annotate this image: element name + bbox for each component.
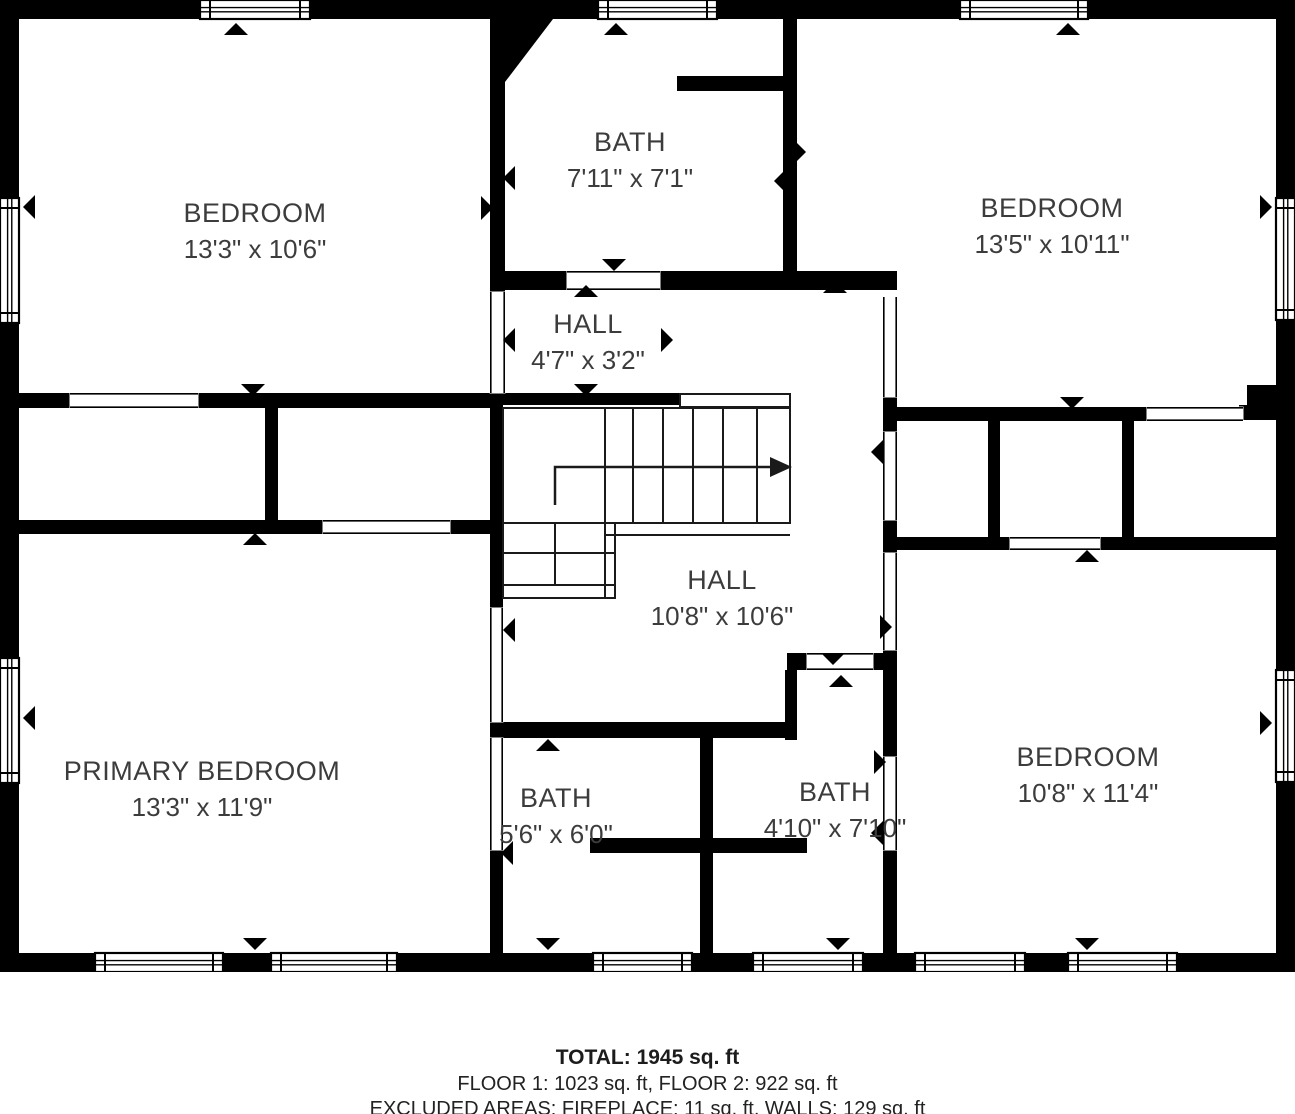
door-swing-marker-icon	[602, 259, 626, 271]
room-label: HALL	[553, 309, 623, 339]
window	[1276, 198, 1295, 320]
door-swing-marker-icon	[503, 618, 515, 642]
wall-segment	[895, 537, 1010, 550]
wall-segment	[265, 408, 278, 522]
window	[200, 0, 310, 19]
excluded-areas-text: EXCLUDED AREAS: FIREPLACE: 11 sq. ft, WA…	[0, 1098, 1295, 1114]
stair-winder-outline	[503, 523, 615, 598]
chamfered-wall	[490, 19, 553, 82]
wall-segment	[490, 850, 503, 953]
room-label: BATH	[520, 783, 592, 813]
window	[753, 953, 863, 972]
area-summary: TOTAL: 1945 sq. ft FLOOR 1: 1023 sq. ft,…	[0, 1046, 1295, 1114]
wall-segment	[1122, 407, 1134, 550]
room-dimensions: 10'8" x 10'6"	[651, 601, 794, 631]
wall-segment	[1276, 0, 1295, 972]
room-dimensions: 7'11" x 7'1"	[567, 163, 693, 193]
wall-segment	[19, 393, 70, 408]
window	[593, 953, 692, 972]
door-swing-marker-icon	[1260, 195, 1272, 219]
door-swing-marker-icon	[1075, 938, 1099, 950]
wall-segment	[498, 271, 567, 290]
wall-segment	[198, 393, 493, 408]
wall-segment	[883, 520, 897, 553]
window	[0, 198, 19, 323]
window	[598, 0, 717, 19]
door-swing-marker-icon	[23, 706, 35, 730]
window	[1276, 670, 1295, 782]
door-swing-marker-icon	[243, 533, 267, 545]
window	[0, 658, 19, 783]
window	[960, 0, 1088, 19]
wall-segment	[785, 670, 797, 740]
door-swing-marker-icon	[826, 938, 850, 950]
wall-segment	[660, 271, 897, 290]
door-opening	[490, 608, 504, 723]
door-swing-marker-icon	[774, 169, 786, 193]
room-dimensions: 13'5" x 10'11"	[974, 229, 1129, 259]
wall-segment	[450, 520, 493, 534]
stair-arrow-head-icon	[770, 457, 792, 477]
room-label: BATH	[594, 127, 666, 157]
room-label: BATH	[799, 777, 871, 807]
stair-landing-strip	[680, 394, 790, 407]
floor-plan-page: BEDROOM13'3" x 10'6"BATH7'11" x 7'1"BEDR…	[0, 0, 1295, 1114]
wall-segment	[700, 738, 713, 953]
window	[1068, 953, 1177, 972]
room-dimensions: 4'10" x 7'10"	[764, 813, 907, 843]
room-label: HALL	[687, 565, 757, 595]
door-opening	[490, 292, 506, 394]
door-swing-marker-icon	[536, 938, 560, 950]
window	[95, 953, 223, 972]
window	[271, 953, 397, 972]
door-opening	[883, 432, 898, 521]
door-swing-marker-icon	[871, 440, 883, 464]
stair-run-outline	[503, 408, 790, 523]
door-swing-marker-icon	[1260, 711, 1272, 735]
door-swing-marker-icon	[604, 23, 628, 35]
wall-segment	[787, 653, 807, 670]
wall-segment	[1247, 385, 1276, 420]
door-swing-marker-icon	[23, 195, 35, 219]
wall-segment	[490, 393, 503, 608]
room-label: BEDROOM	[1016, 742, 1159, 772]
wall-segment	[0, 0, 19, 972]
door-swing-marker-icon	[1056, 23, 1080, 35]
room-dimensions: 13'3" x 11'9"	[132, 792, 273, 822]
door-opening	[1147, 407, 1244, 422]
door-opening	[883, 297, 898, 398]
door-swing-marker-icon	[224, 23, 248, 35]
door-swing-marker-icon	[1075, 550, 1099, 562]
wall-segment	[988, 421, 1000, 537]
floor-areas-text: FLOOR 1: 1023 sq. ft, FLOOR 2: 922 sq. f…	[0, 1073, 1295, 1096]
room-dimensions: 5'6" x 6'0"	[499, 819, 613, 849]
room-dimensions: 13'3" x 10'6"	[184, 234, 327, 264]
wall-segment	[490, 722, 795, 738]
wall-segment	[895, 407, 1147, 421]
wall-segment	[883, 850, 897, 953]
wall-segment	[873, 653, 893, 670]
door-opening	[70, 393, 199, 409]
room-label: PRIMARY BEDROOM	[64, 756, 341, 786]
total-area-text: TOTAL: 1945 sq. ft	[0, 1046, 1295, 1070]
room-dimensions: 10'8" x 11'4"	[1018, 778, 1159, 808]
wall-segment	[1100, 537, 1276, 550]
room-label: BEDROOM	[183, 198, 326, 228]
door-swing-marker-icon	[829, 675, 853, 687]
room-label: BEDROOM	[980, 193, 1123, 223]
door-swing-marker-icon	[794, 140, 806, 164]
door-opening	[883, 553, 898, 651]
window	[915, 953, 1025, 972]
door-swing-marker-icon	[243, 938, 267, 950]
door-swing-marker-icon	[661, 328, 673, 352]
wall-segment	[503, 393, 680, 405]
wall-segment	[677, 76, 783, 91]
wall-segment	[883, 397, 897, 432]
door-swing-marker-icon	[536, 739, 560, 751]
floor-plan-svg: BEDROOM13'3" x 10'6"BATH7'11" x 7'1"BEDR…	[0, 0, 1295, 972]
door-opening	[323, 520, 451, 535]
room-dimensions: 4'7" x 3'2"	[531, 345, 645, 375]
door-opening	[567, 271, 661, 291]
wall-segment	[19, 520, 323, 534]
